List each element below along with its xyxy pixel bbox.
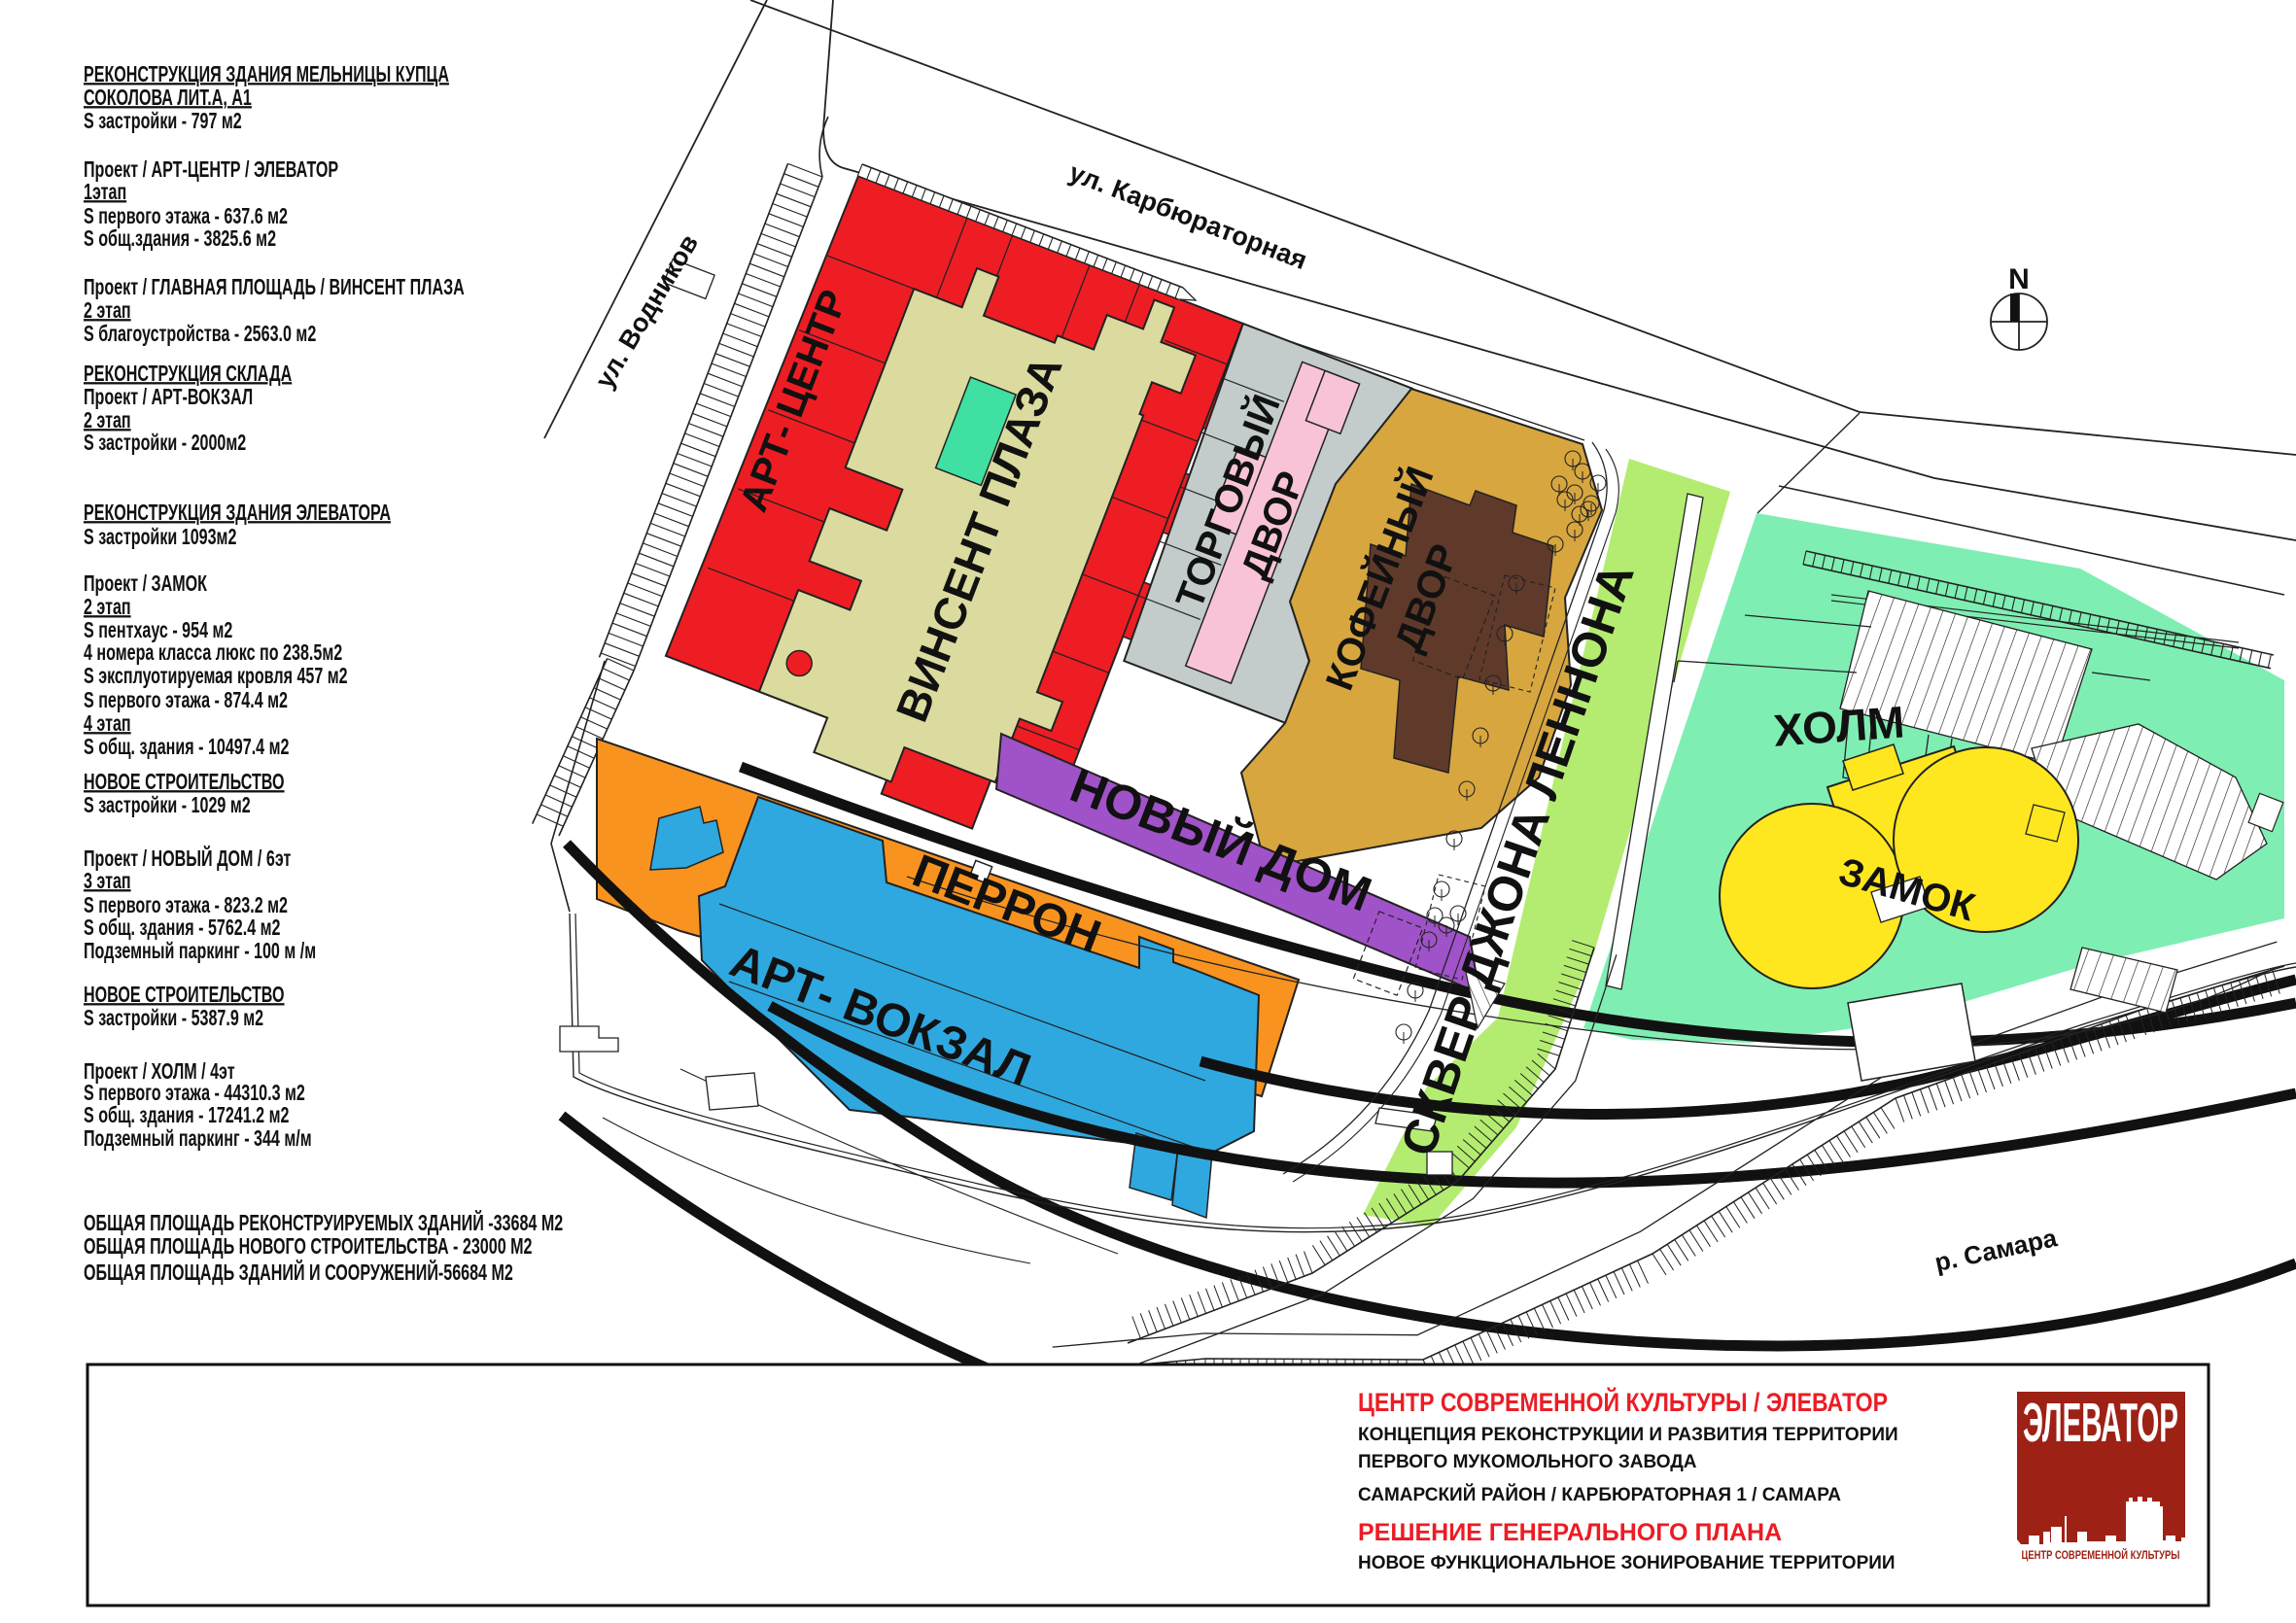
svg-text:РЕКОНСТРУКЦИЯ ЗДАНИЯ ЭЛЕВАТОРА: РЕКОНСТРУКЦИЯ ЗДАНИЯ ЭЛЕВАТОРА: [84, 501, 391, 525]
svg-text:S застройки 1093м2: S застройки 1093м2: [84, 525, 236, 549]
svg-text:Проект / ГЛАВНАЯ ПЛОЩАДЬ / ВИН: Проект / ГЛАВНАЯ ПЛОЩАДЬ / ВИНСЕНТ ПЛАЗА: [84, 275, 465, 299]
svg-text:Проект / ЗАМОК: Проект / ЗАМОК: [84, 571, 208, 596]
svg-text:Проект / АРТ-ВОКЗАЛ: Проект / АРТ-ВОКЗАЛ: [84, 385, 253, 409]
svg-text:S первого этажа - 823.2 м2: S первого этажа - 823.2 м2: [84, 893, 288, 917]
svg-text:ЦЕНТР СОВРЕМЕННОЙ КУЛЬТУРЫ: ЦЕНТР СОВРЕМЕННОЙ КУЛЬТУРЫ: [2022, 1549, 2180, 1562]
svg-text:ХОЛМ: ХОЛМ: [1772, 696, 1906, 755]
svg-text:ОБЩАЯ ПЛОЩАДЬ РЕКОНСТРУИРУЕМЫХ: ОБЩАЯ ПЛОЩАДЬ РЕКОНСТРУИРУЕМЫХ ЗДАНИЙ -3…: [84, 1209, 563, 1236]
svg-text:S застройки - 797 м2: S застройки - 797 м2: [84, 109, 242, 133]
svg-text:Проект / АРТ-ЦЕНТР / ЭЛЕВАТОР: Проект / АРТ-ЦЕНТР / ЭЛЕВАТОР: [84, 157, 338, 182]
svg-text:S пентхаус - 954 м2: S пентхаус - 954 м2: [84, 618, 232, 642]
svg-text:S общ. здания - 10497.4 м2: S общ. здания - 10497.4 м2: [84, 735, 289, 759]
svg-text:S благоустройства - 2563.0 м2: S благоустройства - 2563.0 м2: [84, 322, 316, 346]
svg-text:S общ. здания - 5762.4 м2: S общ. здания - 5762.4 м2: [84, 915, 281, 940]
svg-text:S первого этажа - 44310.3 м2: S первого этажа - 44310.3 м2: [84, 1081, 305, 1105]
svg-text:S застройки - 5387.9 м2: S застройки - 5387.9 м2: [84, 1006, 263, 1030]
svg-text:S застройки - 1029 м2: S застройки - 1029 м2: [84, 793, 251, 817]
svg-text:N: N: [2008, 263, 2030, 295]
svg-text:Подземный паркинг - 100 м /м: Подземный паркинг - 100 м /м: [84, 939, 316, 963]
svg-text:НОВОЕ СТРОИТЕЛЬСТВО: НОВОЕ СТРОИТЕЛЬСТВО: [84, 770, 285, 794]
svg-text:ЭЛЕВАТОР: ЭЛЕВАТОР: [2023, 1392, 2178, 1454]
svg-text:S общ. здания - 17241.2 м2: S общ. здания - 17241.2 м2: [84, 1103, 289, 1127]
svg-text:S общ.здания - 3825.6 м2: S общ.здания - 3825.6 м2: [84, 226, 276, 251]
svg-text:S застройки - 2000м2: S застройки - 2000м2: [84, 431, 246, 455]
svg-text:СОКОЛОВА ЛИТ.А, А1: СОКОЛОВА ЛИТ.А, А1: [84, 86, 252, 110]
svg-text:КОНЦЕПЦИЯ РЕКОНСТРУКЦИИ И РАЗ: КОНЦЕПЦИЯ РЕКОНСТРУКЦИИ И РАЗВИТИЯ ТЕРРИ…: [1358, 1425, 1898, 1445]
svg-text:ЦЕНТР СОВРЕМЕННОЙ КУЛЬТУРЫ: ЦЕНТР СОВРЕМЕННОЙ КУЛЬТУРЫ / ЭЛЕВАТОР: [1358, 1387, 1888, 1417]
svg-text:S эксплуотируемая кровля 457 м: S эксплуотируемая кровля 457 м2: [84, 664, 348, 688]
svg-text:1этап: 1этап: [84, 180, 126, 204]
svg-text:4 этап: 4 этап: [84, 711, 131, 736]
svg-text:2 этап: 2 этап: [84, 298, 131, 323]
svg-text:ПЕРВОГО МУКОМОЛЬНОГО ЗАВОДА: ПЕРВОГО МУКОМОЛЬНОГО ЗАВОДА: [1358, 1452, 1697, 1472]
svg-text:РЕШЕНИЕ ГЕНЕРАЛЬНОГО ПЛАНА: РЕШЕНИЕ ГЕНЕРАЛЬНОГО ПЛАНА: [1358, 1519, 1782, 1546]
svg-text:Проект / НОВЫЙ ДОМ / 6эт: Проект / НОВЫЙ ДОМ / 6эт: [84, 845, 292, 872]
svg-text:НОВОЕ ФУНКЦИОНАЛЬНОЕ ЗОНИРОВА: НОВОЕ ФУНКЦИОНАЛЬНОЕ ЗОНИРОВАНИЕ ТЕРРИТО…: [1358, 1553, 1896, 1573]
svg-text:2 этап: 2 этап: [84, 408, 131, 432]
svg-text:S первого этажа - 874.4 м2: S первого этажа - 874.4 м2: [84, 688, 288, 712]
svg-text:S первого этажа - 637.6 м2: S первого этажа - 637.6 м2: [84, 204, 288, 228]
svg-text:2 этап: 2 этап: [84, 595, 131, 619]
svg-text:РЕКОНСТРУКЦИЯ ЗДАНИЯ МЕЛЬНИЦЫ: РЕКОНСТРУКЦИЯ ЗДАНИЯ МЕЛЬНИЦЫ КУПЦА: [84, 62, 449, 86]
svg-text:НОВОЕ СТРОИТЕЛЬСТВО: НОВОЕ СТРОИТЕЛЬСТВО: [84, 983, 285, 1007]
svg-text:4 номера класса люкс по 238.5м: 4 номера класса люкс по 238.5м2: [84, 640, 342, 665]
svg-text:ОБЩАЯ ПЛОЩАДЬ ЗДАНИЙ И СООРУЖЕ: ОБЩАЯ ПЛОЩАДЬ ЗДАНИЙ И СООРУЖЕНИЙ-56684 …: [84, 1259, 513, 1286]
svg-text:Подземный паркинг - 344 м/м: Подземный паркинг - 344 м/м: [84, 1126, 312, 1151]
svg-text:3 этап: 3 этап: [84, 869, 131, 893]
svg-text:РЕКОНСТРУКЦИЯ СКЛАДА: РЕКОНСТРУКЦИЯ СКЛАДА: [84, 362, 292, 386]
svg-text:ОБЩАЯ ПЛОЩАДЬ НОВОГО СТРОИТЕЛЬ: ОБЩАЯ ПЛОЩАДЬ НОВОГО СТРОИТЕЛЬСТВА - 230…: [84, 1234, 532, 1259]
svg-text:САМАРСКИЙ РАЙОН / КАРБЮРАТОРНА: САМАРСКИЙ РАЙОН / КАРБЮРАТОРНАЯ 1 / САМА…: [1358, 1484, 1841, 1505]
